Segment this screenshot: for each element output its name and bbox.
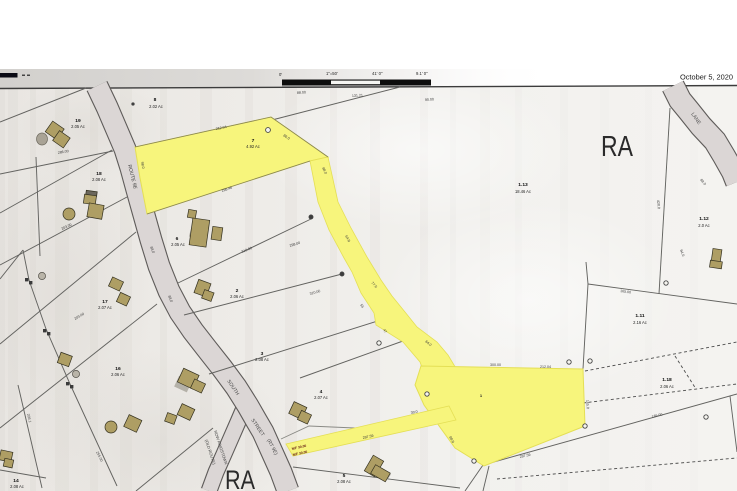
svg-text:9.1' 0": 9.1' 0" [416, 71, 428, 76]
svg-text:2.08 Ac: 2.08 Ac [255, 357, 269, 362]
svg-text:2.05 Ac: 2.05 Ac [71, 124, 85, 129]
svg-text:420.0: 420.0 [656, 200, 661, 209]
svg-text:0': 0' [279, 72, 282, 77]
svg-text:RA: RA [601, 131, 634, 163]
svg-text:300.00: 300.00 [490, 363, 501, 367]
svg-text:2.05 Ac: 2.05 Ac [171, 242, 185, 247]
svg-text:131.21: 131.21 [352, 93, 363, 98]
svg-text:2.16 Ac: 2.16 Ac [633, 320, 647, 325]
svg-text:2.0 Ac: 2.0 Ac [698, 223, 709, 228]
svg-text:2.06 Ac: 2.06 Ac [230, 294, 244, 299]
svg-text:2.07 Ac: 2.07 Ac [314, 395, 328, 400]
svg-text:2.06 Ac: 2.06 Ac [111, 372, 125, 377]
svg-text:90.00: 90.00 [425, 97, 434, 102]
svg-text:1.13: 1.13 [518, 182, 528, 188]
svg-text:October 5, 2020: October 5, 2020 [680, 73, 733, 82]
svg-text:1.18: 1.18 [662, 377, 672, 383]
svg-text:2.07 Ac: 2.07 Ac [98, 305, 112, 310]
svg-text:18.46 Ac: 18.46 Ac [515, 189, 531, 194]
svg-text:2.08 Ac: 2.08 Ac [337, 479, 351, 484]
svg-text:2.02 Ac: 2.02 Ac [149, 104, 163, 109]
svg-text:165.0: 165.0 [585, 400, 590, 409]
svg-text:2.06 Ac: 2.06 Ac [660, 384, 674, 389]
svg-text:2.08 Ac: 2.08 Ac [10, 484, 24, 489]
svg-text:88.00: 88.00 [297, 90, 306, 95]
svg-text:1"=50': 1"=50' [326, 71, 338, 76]
svg-text:1.12: 1.12 [699, 216, 709, 222]
svg-text:2.08 Ac: 2.08 Ac [92, 177, 106, 182]
svg-text:4.92 Ac: 4.92 Ac [246, 144, 260, 149]
svg-text:212.04: 212.04 [540, 365, 551, 369]
svg-text:RA: RA [225, 465, 255, 491]
svg-text:8: 8 [154, 97, 157, 103]
svg-text:41' 0": 41' 0" [372, 71, 383, 76]
svg-text:1.11: 1.11 [635, 313, 645, 319]
